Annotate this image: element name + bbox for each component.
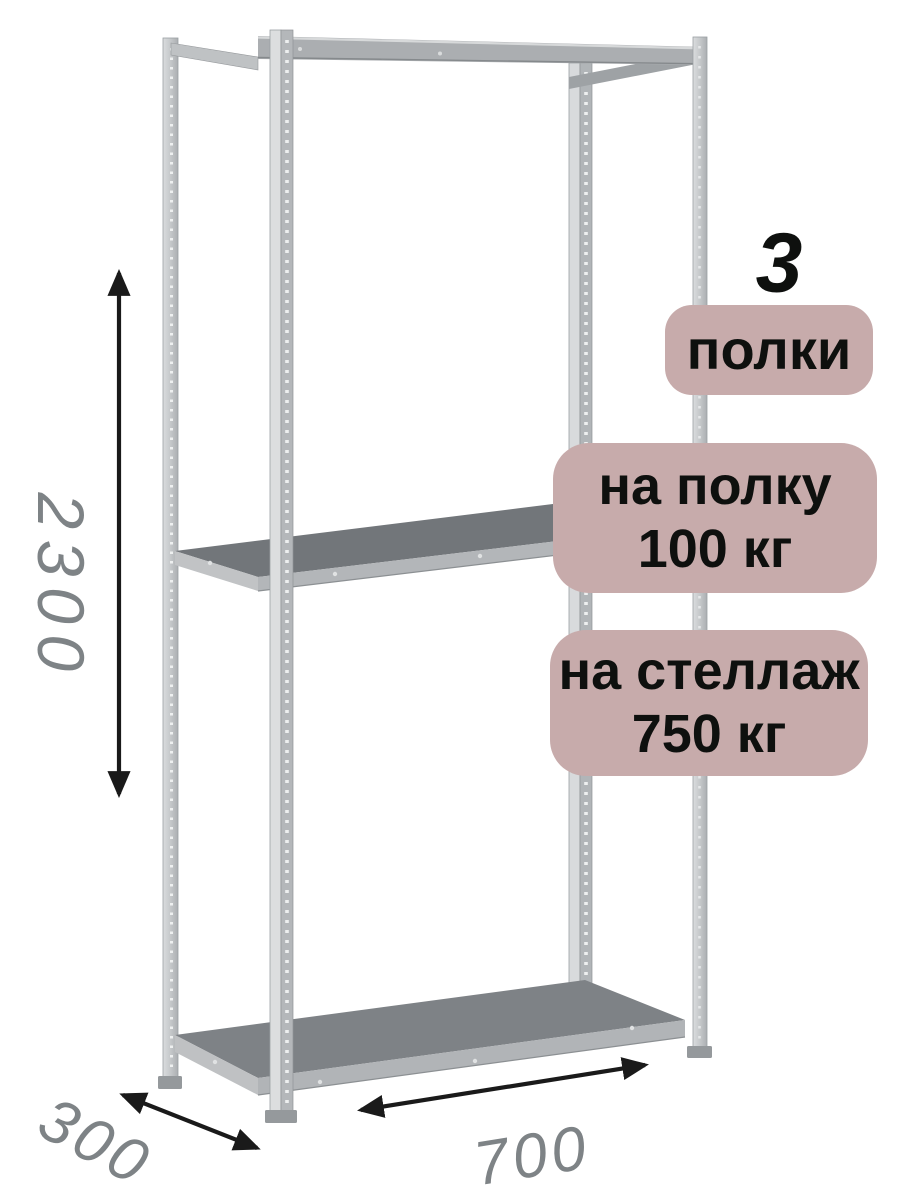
shelf-side-beam-left	[171, 43, 258, 70]
per-rack-load-line2: 750 кг	[632, 703, 787, 766]
bolt	[318, 1080, 322, 1084]
per-shelf-load-badge: на полку 100 кг	[553, 443, 877, 593]
per-shelf-load-line2: 100 кг	[638, 518, 793, 581]
post-flange	[270, 30, 281, 1114]
foot	[158, 1076, 182, 1089]
rack-illustration	[0, 0, 900, 1200]
bolt	[630, 1026, 634, 1030]
bolt	[438, 52, 442, 56]
shelf-count-value: 3	[756, 220, 803, 304]
bolt	[213, 1060, 217, 1064]
bolt	[478, 554, 482, 558]
product-image: 2300 300 700 3 полки на полку 100 кг на …	[0, 0, 900, 1200]
foot	[687, 1046, 712, 1058]
bolt	[298, 47, 302, 51]
bolt	[208, 561, 212, 565]
per-rack-load-line1: на стеллаж	[558, 640, 859, 703]
shelf-count-badge-label: полки	[687, 318, 852, 383]
bolt	[333, 572, 337, 576]
per-rack-load-badge: на стеллаж 750 кг	[550, 630, 868, 776]
height-dimension-label: 2300	[23, 492, 99, 681]
shelf-count-badge: полки	[665, 305, 873, 395]
rack-shelf-bottom	[175, 980, 685, 1095]
rack-shelf-top	[171, 36, 707, 89]
rack-post-front-left	[270, 30, 293, 1114]
per-shelf-load-line1: на полку	[598, 455, 831, 518]
foot	[265, 1110, 297, 1123]
bolt	[473, 1059, 477, 1063]
